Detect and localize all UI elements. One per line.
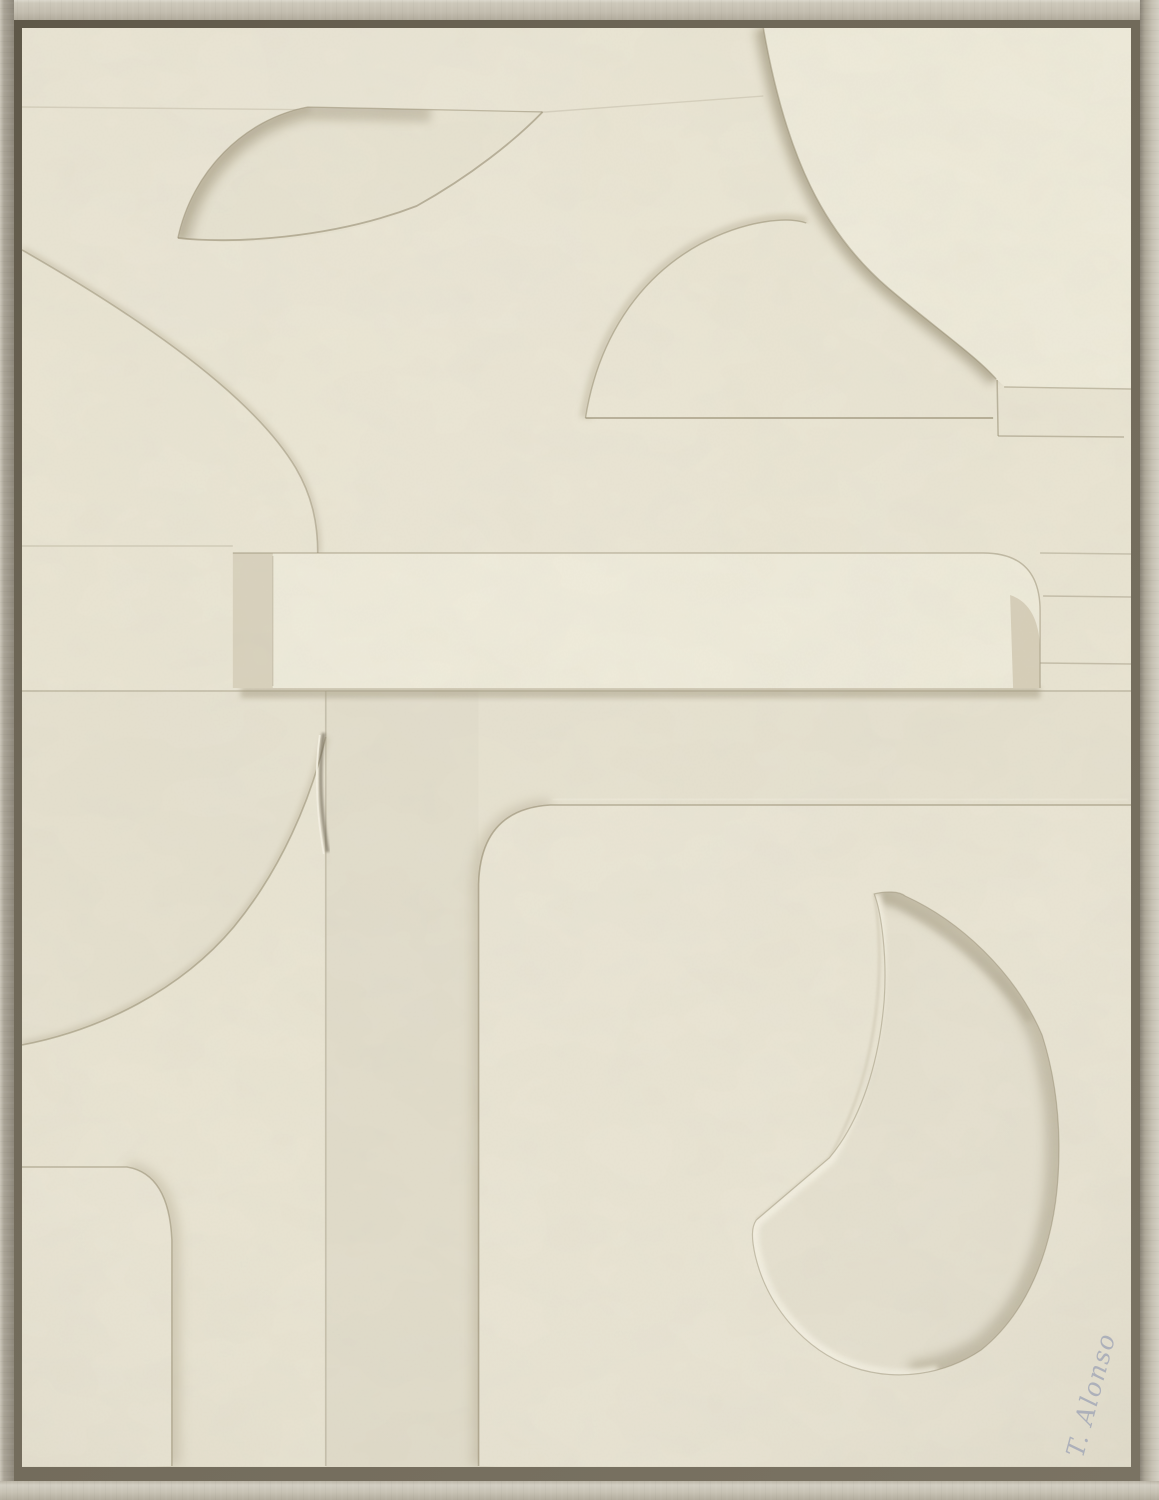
plaster-texture [22,28,1131,1467]
frame-rail-top [0,0,1159,20]
frame-rail-bottom [0,1481,1159,1500]
artwork-canvas: T. Alonso [22,28,1131,1467]
frame-rail-left [0,0,14,1500]
framed-artwork-photo: T. Alonso [0,0,1159,1500]
relief-artwork [22,28,1131,1467]
frame-rail-right [1140,0,1159,1500]
frame-shadow-gap: T. Alonso [14,20,1140,1481]
